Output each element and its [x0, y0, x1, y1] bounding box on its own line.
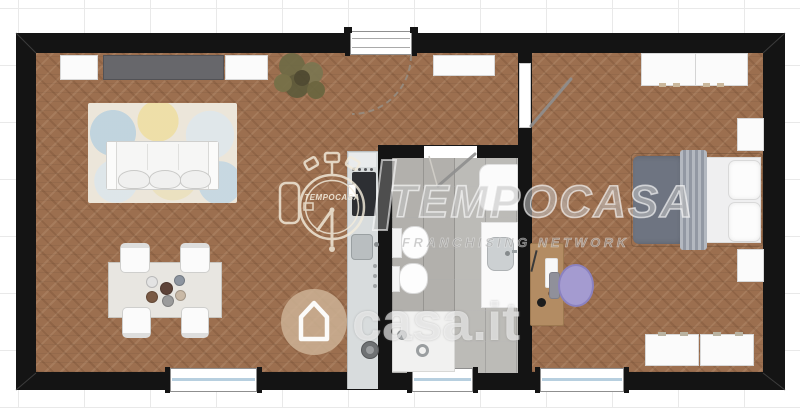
- franchising-network-text: FRANCHISING NETWORK: [402, 235, 630, 250]
- house-icon: [281, 289, 347, 355]
- floor-plan-image: TEMPOCASA TEMPOCASA FRANCHISING NETWORK …: [0, 0, 800, 408]
- stopwatch-icon: [280, 153, 364, 252]
- tempocasa-brand-text: TEMPOCASA: [389, 177, 695, 227]
- entrance-door-swing: [352, 55, 411, 114]
- bedroom-door-swing-line: [531, 79, 571, 126]
- plant: [274, 53, 325, 99]
- casait-text: casa.it: [352, 293, 520, 351]
- stopwatch-logo-text: TEMPOCASA: [304, 193, 360, 202]
- casait-badge: [281, 289, 347, 355]
